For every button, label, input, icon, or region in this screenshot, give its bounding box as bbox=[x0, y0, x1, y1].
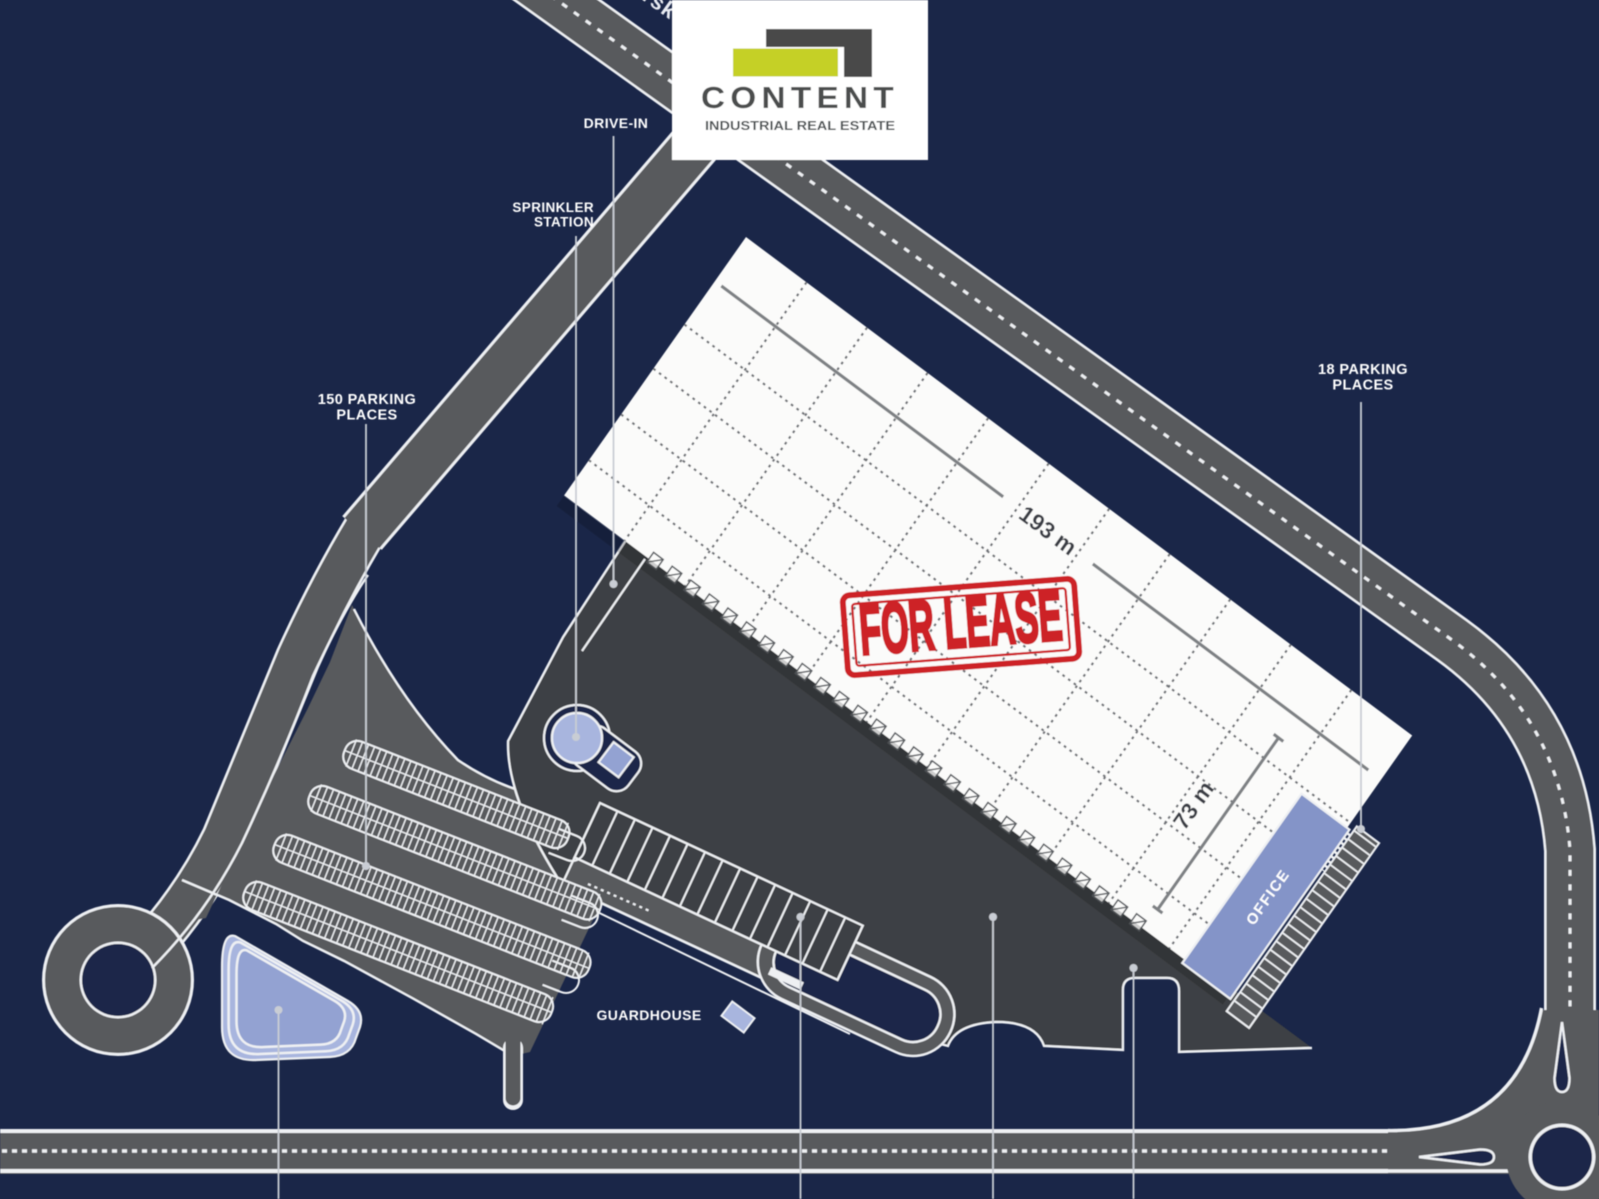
svg-text:CONTENT: CONTENT bbox=[701, 80, 899, 115]
svg-text:DRIVE-IN: DRIVE-IN bbox=[584, 115, 649, 131]
svg-text:INDUSTRIAL REAL ESTATE: INDUSTRIAL REAL ESTATE bbox=[705, 119, 895, 133]
svg-text:GUARDHOUSE: GUARDHOUSE bbox=[596, 1007, 701, 1023]
svg-text:FOR LEASE: FOR LEASE bbox=[856, 575, 1065, 670]
